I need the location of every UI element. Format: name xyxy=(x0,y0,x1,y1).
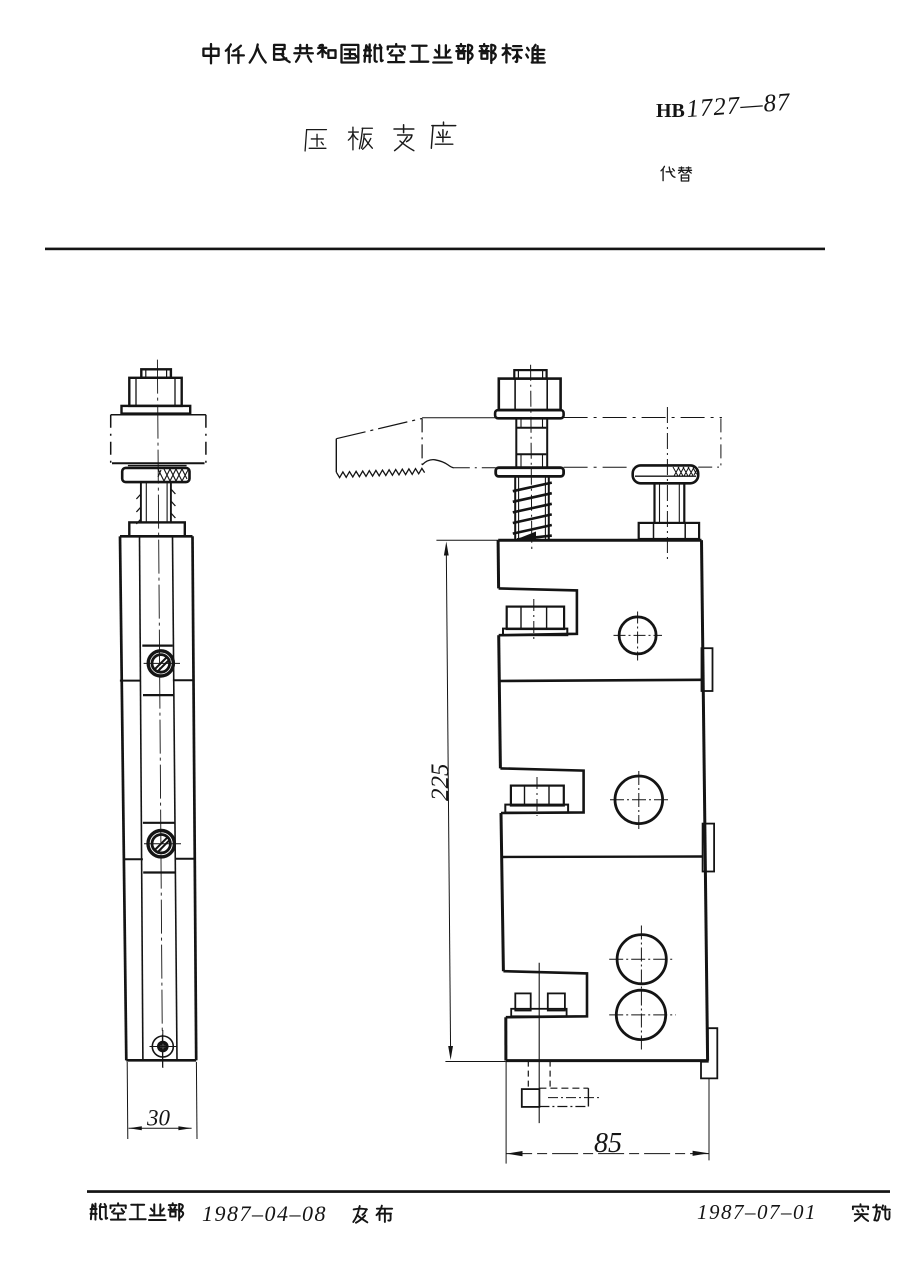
svg-text:225: 225 xyxy=(427,764,454,802)
svg-text:1987–04–08: 1987–04–08 xyxy=(202,1201,327,1226)
svg-text:1987–07–01: 1987–07–01 xyxy=(697,1200,817,1224)
svg-text:30: 30 xyxy=(146,1106,171,1131)
svg-text:HB: HB xyxy=(656,100,685,122)
svg-text:85: 85 xyxy=(594,1128,622,1159)
